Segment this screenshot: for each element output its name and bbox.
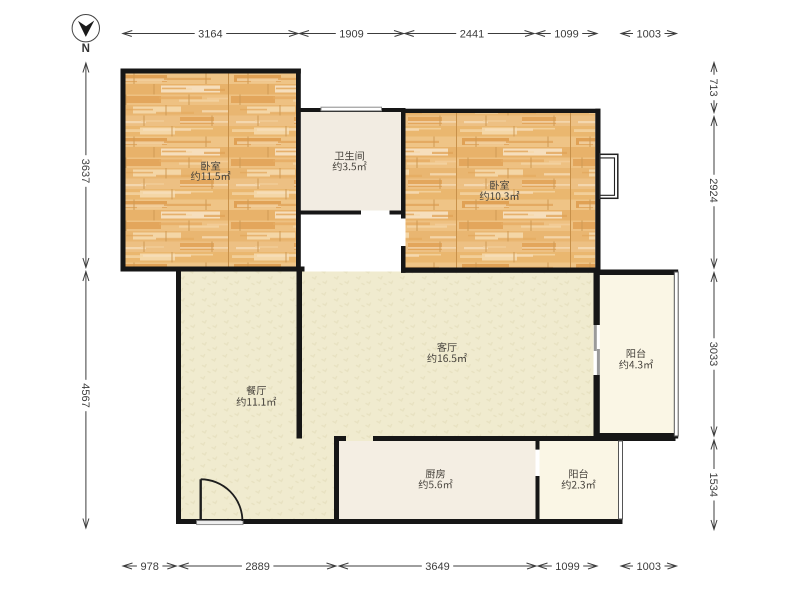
- svg-text:1003: 1003: [637, 28, 661, 40]
- svg-text:3649: 3649: [425, 561, 449, 573]
- svg-text:2889: 2889: [245, 561, 269, 573]
- svg-text:3033: 3033: [707, 342, 719, 366]
- svg-text:1534: 1534: [707, 473, 719, 497]
- svg-text:3164: 3164: [198, 28, 222, 40]
- svg-text:1003: 1003: [637, 561, 661, 573]
- svg-text:3637: 3637: [79, 159, 91, 183]
- svg-text:1099: 1099: [554, 28, 578, 40]
- svg-text:2441: 2441: [460, 28, 484, 40]
- svg-text:978: 978: [141, 561, 159, 573]
- svg-text:1099: 1099: [555, 561, 579, 573]
- svg-text:1909: 1909: [339, 28, 363, 40]
- svg-text:4567: 4567: [79, 383, 91, 407]
- svg-text:713: 713: [707, 78, 719, 96]
- svg-text:N: N: [82, 43, 90, 55]
- svg-text:2924: 2924: [707, 178, 719, 202]
